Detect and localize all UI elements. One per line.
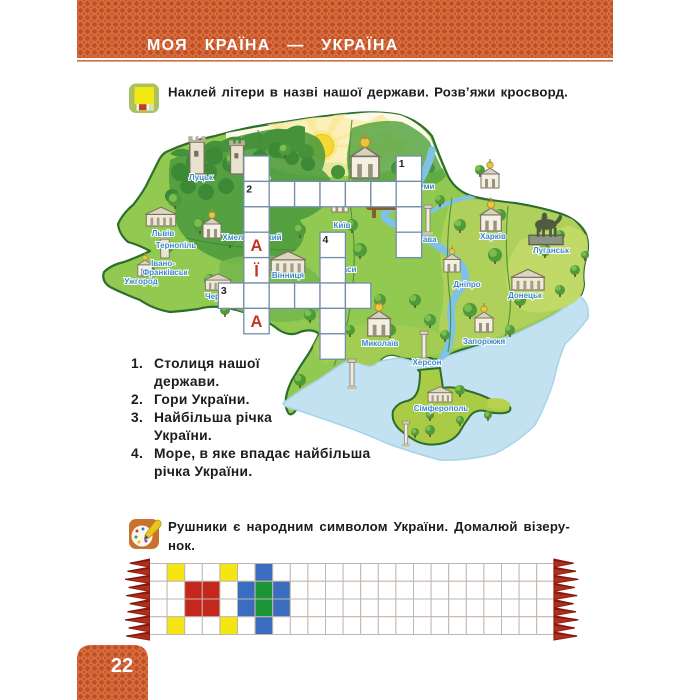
svg-text:А: А (251, 313, 263, 331)
svg-text:Море, в яке впадає найбіль: Море, в яке впадає найбільша (154, 446, 371, 461)
svg-text:Дніпро: Дніпро (453, 280, 480, 289)
svg-text:Львів: Львів (152, 229, 175, 238)
svg-text:Сімферополь: Сімферополь (414, 404, 469, 413)
svg-text:Харків: Харків (480, 232, 506, 241)
svg-text:4: 4 (323, 234, 329, 246)
svg-text:1: 1 (399, 158, 405, 170)
svg-text:3.: 3. (131, 410, 143, 425)
svg-text:Рушники є народним символом Ук: Рушники є народним символом України. Дом… (168, 519, 570, 534)
svg-text:Миколаїв: Миколаїв (362, 339, 399, 348)
svg-text:3: 3 (221, 285, 227, 297)
svg-text:Запоріжжя: Запоріжжя (463, 337, 506, 346)
svg-text:1.: 1. (131, 356, 143, 371)
svg-text:4.: 4. (131, 446, 143, 461)
svg-text:Тернопіль: Тернопіль (156, 241, 197, 250)
svg-text:А: А (251, 237, 263, 255)
svg-text:Вінниця: Вінниця (272, 271, 305, 280)
svg-text:Гори України.: Гори України. (154, 392, 250, 407)
svg-text:Херсон: Херсон (413, 358, 442, 367)
svg-text:МОЯ КРАЇНА — УКРАЇНА: МОЯ КРАЇНА — УКРАЇНА (147, 36, 399, 54)
svg-text:2.: 2. (131, 392, 143, 407)
svg-text:Луцьк: Луцьк (189, 173, 214, 182)
svg-text:нок.: нок. (168, 538, 195, 553)
svg-text:Найбільша річка: Найбільша річка (154, 410, 272, 425)
svg-text:України.: України. (154, 428, 212, 443)
svg-text:Луганськ: Луганськ (533, 246, 570, 255)
svg-text:держави.: держави. (154, 374, 220, 389)
svg-text:Донецьк: Донецьк (508, 291, 543, 300)
svg-text:Франківськ: Франківськ (142, 268, 188, 277)
svg-text:Столиця нашої: Столиця нашої (154, 356, 261, 371)
svg-text:річка України.: річка України. (154, 464, 252, 479)
svg-text:2: 2 (246, 183, 252, 195)
svg-text:Київ: Київ (334, 221, 351, 230)
svg-text:Наклей літери в назві нашої де: Наклей літери в назві нашої держави. Роз… (168, 85, 568, 100)
svg-text:22: 22 (111, 655, 133, 677)
svg-text:Ужгород: Ужгород (124, 277, 157, 286)
svg-text:Ї: Ї (253, 262, 259, 280)
svg-text:Івано-: Івано- (151, 259, 175, 268)
